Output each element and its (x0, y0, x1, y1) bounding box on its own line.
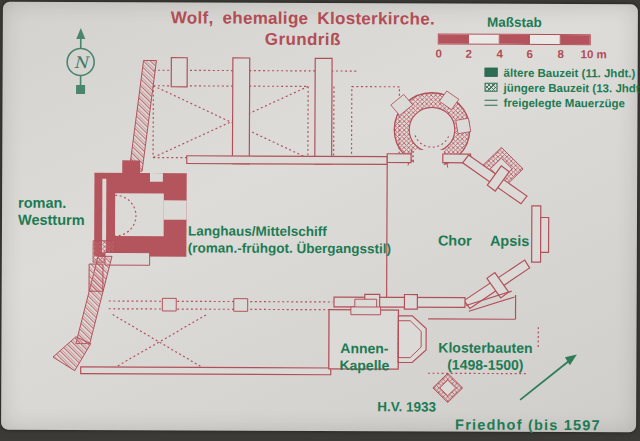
label-survey-mark: H.V. 1933 (377, 399, 436, 415)
label-klosterbauten: Klosterbauten (1498-1500) (435, 340, 535, 373)
label-westturm: roman. Westturm (18, 195, 85, 230)
sign-board: Wolf, ehemalige Klosterkirche. Grundriß … (1, 2, 638, 433)
label-westturm-line2: Westturm (18, 212, 85, 229)
label-langhaus-line1: Langhaus/Mittelschiff (188, 222, 391, 240)
photo-background: { "colors": { "plan_red": "#b24d56", "te… (0, 0, 640, 441)
label-annenkapelle: Annen- Kapelle (325, 340, 403, 373)
label-friedhof: Friedhof (bis 1597 (455, 417, 601, 435)
label-kloster-line2: (1498-1500) (435, 356, 535, 373)
label-annen-line2: Kapelle (325, 357, 403, 374)
southwest-hatched-wall (53, 256, 112, 371)
label-langhaus-line2: (roman.-frühgot. Übergangsstil) (188, 239, 391, 257)
west-tower (93, 160, 187, 265)
label-apsis: Apsis (490, 233, 530, 250)
floor-plan (1, 2, 638, 433)
excavated-cloister-north (153, 70, 399, 158)
label-kloster-line1: Klosterbauten (435, 340, 535, 357)
label-westturm-line1: roman. (18, 195, 85, 212)
label-chor: Chor (438, 233, 472, 250)
northwest-hatched-wall (129, 60, 156, 171)
south-aisle-wall (81, 367, 331, 375)
nave-pillars (171, 58, 332, 164)
label-annen-line1: Annen- (325, 340, 403, 357)
label-langhaus: Langhaus/Mittelschiff (roman.-frühgot. Ü… (188, 222, 391, 257)
